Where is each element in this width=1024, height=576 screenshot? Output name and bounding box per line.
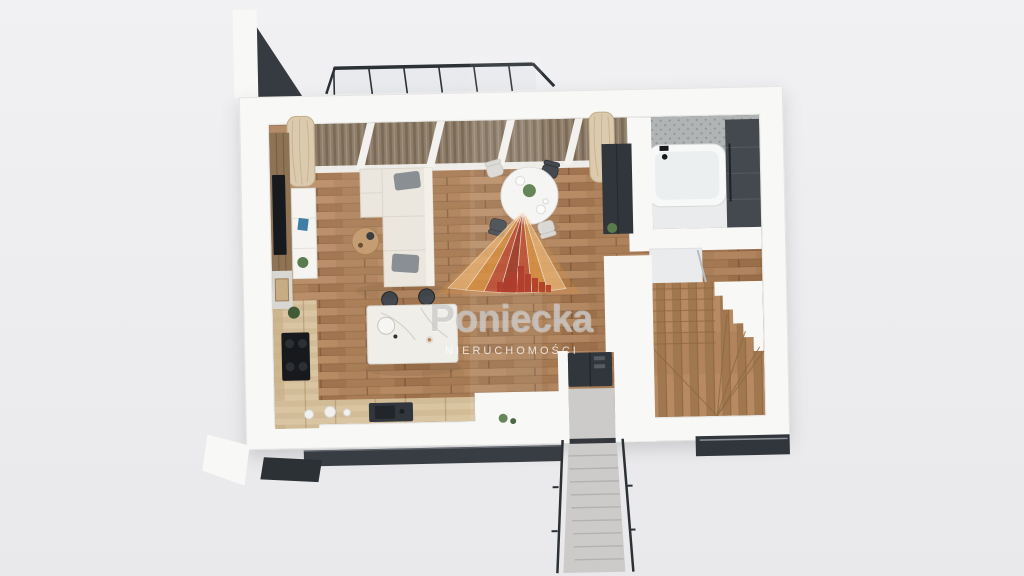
floorplan-render: Poniecka Poniecka NIERUCHOMOŚCI [0,0,1024,576]
lower-balcony-box [260,456,323,483]
fridge [568,352,613,387]
tv [272,175,287,255]
cooktop [281,332,310,381]
sofa-pillow [391,253,419,273]
counter-item [324,406,335,417]
kitchen-sink [369,402,413,422]
bath-faucet [659,146,668,151]
vestibule-floor [569,388,616,443]
wardrobe [601,144,633,235]
staircase [652,281,765,417]
lower-corner-wall [201,434,250,487]
island-sink [378,317,395,334]
sideboard [291,188,317,278]
floorplan-svg: Poniecka Poniecka NIERUCHOMOŚCI [0,0,1024,576]
vestibule-right-wall [614,349,656,442]
terrace-drapes [269,118,632,175]
counter-item [304,410,313,419]
hall-wall [604,255,654,352]
upper-wall-sliver [233,9,259,97]
sofa-pillow [393,171,421,191]
blue-decor [297,218,308,231]
roof-triangle [257,26,302,97]
curtain-left [287,116,315,187]
bathroom-door [650,248,707,287]
watermark-subtitle: NIERUCHOMOŚCI [445,344,579,357]
coffee-table [352,227,380,255]
bathroom [647,115,761,229]
entry-handrail-right [623,439,634,572]
watermark-brand: Poniecka [430,298,594,340]
wall-picture [275,279,288,301]
counter-item [343,409,350,416]
cup [543,199,548,204]
lower-floor-glazing-left [304,445,562,466]
media-wall [269,133,293,309]
entry-stairs [550,438,637,574]
lower-floor-glazing-right [696,434,790,456]
entry-threshold [570,438,616,444]
towel-rail [729,143,730,201]
